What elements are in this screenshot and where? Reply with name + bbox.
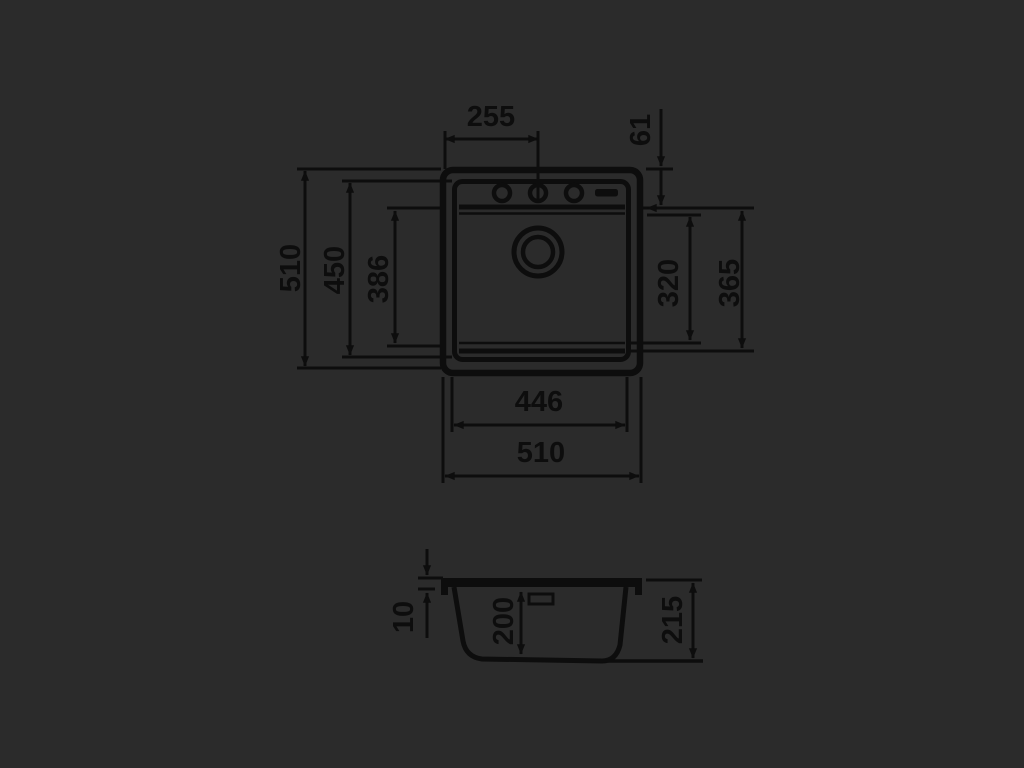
dim-446: 446	[452, 377, 627, 432]
drawing-svg: 255 61 510 450 386	[0, 0, 1024, 768]
dim-215: 215	[646, 580, 702, 658]
dim-10: 10	[388, 549, 443, 638]
dim-386: 386	[363, 208, 441, 346]
bowl-profile	[454, 587, 626, 661]
dim-510-bottom-label: 510	[517, 437, 565, 469]
rim-flange	[441, 578, 642, 587]
faucet-hole-left	[494, 185, 510, 201]
dim-200: 200	[488, 592, 521, 654]
dim-446-label: 446	[515, 386, 563, 418]
dim-61: 61	[625, 109, 754, 208]
dim-510-left: 510	[275, 169, 441, 368]
section-view: 10 200 215	[388, 549, 703, 661]
dim-200-label: 200	[488, 597, 520, 645]
dim-510-left-label: 510	[275, 244, 307, 292]
top-view: 255 61 510 450 386	[275, 101, 754, 483]
overflow-slot	[529, 594, 553, 604]
dim-215-label: 215	[657, 596, 689, 644]
rim-lip-left	[441, 587, 448, 595]
sink-outline	[443, 170, 640, 373]
dim-10-label: 10	[388, 601, 420, 633]
dim-386-label: 386	[363, 255, 395, 303]
dim-255-label: 255	[467, 101, 515, 133]
dim-320-label: 320	[653, 259, 685, 307]
dim-61-label: 61	[625, 114, 657, 146]
faucet-hole-right	[566, 185, 582, 201]
deck-logo-bar	[595, 189, 618, 197]
dim-365: 365	[630, 211, 754, 351]
dim-365-label: 365	[714, 259, 746, 307]
rim-lip-right	[635, 587, 642, 595]
dim-450-label: 450	[319, 246, 351, 294]
drain-inner-circle	[523, 237, 553, 267]
sink-dimension-drawing: 255 61 510 450 386	[0, 0, 1024, 768]
